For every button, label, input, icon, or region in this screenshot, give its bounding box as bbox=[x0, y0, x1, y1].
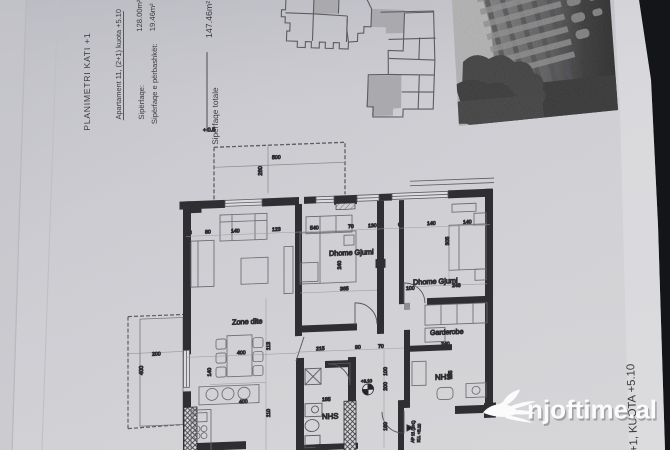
svg-text:200: 200 bbox=[152, 351, 161, 357]
svg-text:500: 500 bbox=[272, 155, 281, 161]
svg-text:+3.10: +3.10 bbox=[361, 378, 373, 383]
svg-text:400: 400 bbox=[139, 366, 145, 376]
svg-text:Zone dite: Zone dite bbox=[232, 316, 262, 326]
svg-text:PLANIMETRI KATI +1: PLANIMETRI KATI +1 bbox=[82, 32, 92, 130]
svg-text:Sipërfaqe totale: Sipërfaqe totale bbox=[211, 87, 220, 145]
svg-text:305: 305 bbox=[445, 236, 451, 245]
svg-text:185: 185 bbox=[322, 397, 331, 403]
svg-text:215: 215 bbox=[316, 346, 325, 352]
svg-text:400: 400 bbox=[237, 350, 246, 356]
svg-text:400: 400 bbox=[239, 399, 248, 405]
svg-text:113: 113 bbox=[266, 342, 272, 351]
svg-text:128.00m²: 128.00m² bbox=[135, 0, 144, 32]
svg-text:80: 80 bbox=[205, 229, 211, 235]
svg-text:AP 11 (2+1): AP 11 (2+1) bbox=[410, 420, 416, 443]
svg-text:+ 0.5: + 0.5 bbox=[203, 127, 215, 133]
svg-text:240: 240 bbox=[441, 341, 450, 347]
svg-text:123: 123 bbox=[272, 227, 281, 233]
svg-text:Sipërfaqe e përbashkët:: Sipërfaqe e përbashkët: bbox=[150, 43, 159, 124]
svg-text:140: 140 bbox=[427, 221, 436, 227]
svg-text:100: 100 bbox=[383, 367, 389, 376]
svg-text:19.46m²: 19.46m² bbox=[148, 3, 157, 32]
svg-text:155: 155 bbox=[315, 444, 324, 450]
svg-text:70: 70 bbox=[378, 344, 384, 350]
svg-text:240: 240 bbox=[337, 261, 343, 270]
svg-text:NHS: NHS bbox=[435, 372, 451, 382]
svg-text:140: 140 bbox=[231, 228, 240, 234]
svg-text:540: 540 bbox=[310, 225, 319, 231]
svg-text:365: 365 bbox=[340, 286, 349, 292]
svg-text:njoftime.al: njoftime.al bbox=[527, 395, 657, 425]
svg-text:Dhome Gjumi: Dhome Gjumi bbox=[329, 247, 374, 258]
svg-text:Sipërfaqe:: Sipërfaqe: bbox=[137, 85, 146, 120]
svg-text:147.46m²: 147.46m² bbox=[204, 1, 214, 39]
svg-text:Dhome Gjumi: Dhome Gjumi bbox=[413, 276, 458, 287]
svg-text:KU. +5.10: KU. +5.10 bbox=[416, 423, 422, 442]
svg-text:NHS: NHS bbox=[322, 412, 338, 422]
svg-text:110: 110 bbox=[266, 409, 272, 418]
svg-text:Garderobe: Garderobe bbox=[430, 328, 464, 337]
svg-text:200: 200 bbox=[383, 382, 389, 391]
svg-text:70: 70 bbox=[348, 224, 354, 230]
svg-text:260: 260 bbox=[258, 166, 264, 176]
svg-text:43: 43 bbox=[186, 230, 192, 236]
svg-text:60: 60 bbox=[398, 222, 404, 228]
svg-text:140: 140 bbox=[207, 368, 213, 377]
svg-text:Apartament 11, (2+1) kuota +5.: Apartament 11, (2+1) kuota +5.10 bbox=[114, 9, 123, 120]
svg-text:140: 140 bbox=[463, 219, 472, 225]
svg-text:160: 160 bbox=[383, 422, 389, 431]
svg-text:90: 90 bbox=[355, 345, 361, 351]
svg-text:130: 130 bbox=[368, 223, 377, 229]
